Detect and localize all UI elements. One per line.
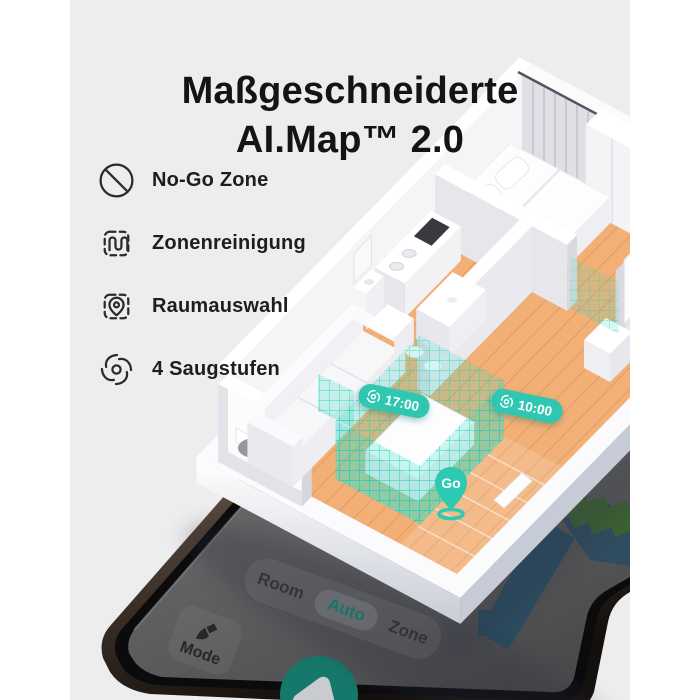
cyclone-icon [364,387,383,406]
schedule-time: 17:00 [384,392,421,414]
no-go-zone-icon [96,160,137,201]
feature-zone-cleaning: Zonenreinigung [96,223,306,264]
feature-label: Zonenreinigung [152,232,306,255]
schedule-time: 10:00 [517,397,554,419]
cyclone-icon [497,392,516,411]
ad-panel: Room Auto Zone Mode [70,0,630,700]
segment-room[interactable]: Room [255,568,307,603]
go-pin-label: Go [441,475,460,491]
page-title: Maßgeschneiderte AI.Map™ 2.0 [70,67,630,165]
title-line-2: AI.Map™ 2.0 [70,116,630,165]
suction-levels-icon [96,349,137,390]
zone-cleaning-icon [96,223,137,264]
room-selection-icon [96,286,137,327]
go-location-pin[interactable]: Go [432,464,470,526]
segment-zone[interactable]: Zone [386,616,431,649]
feature-label: 4 Saugstufen [152,358,280,381]
feature-room-selection: Raumauswahl [96,286,306,327]
feature-no-go-zone: No-Go Zone [96,160,306,201]
title-line-1: Maßgeschneiderte [70,67,630,116]
feature-label: Raumauswahl [152,295,289,318]
feature-suction-levels: 4 Saugstufen [96,349,306,390]
feature-label: No-Go Zone [152,169,268,192]
feature-list: No-Go Zone Zonenreinigung Raumauswahl [96,160,306,390]
